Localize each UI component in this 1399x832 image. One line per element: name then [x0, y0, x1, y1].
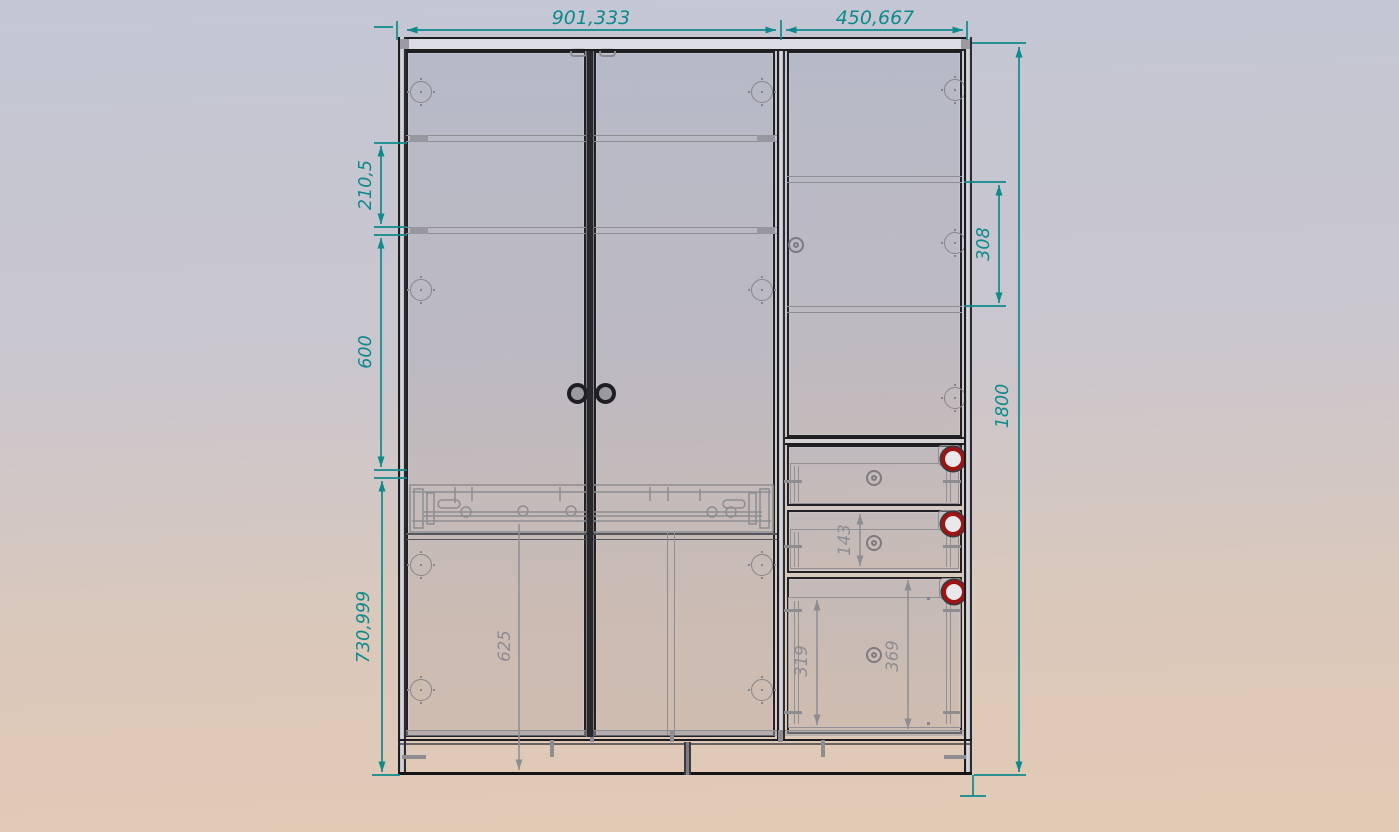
- top-panel: [398, 37, 972, 51]
- drawer-knob-icon[interactable]: [866, 647, 882, 663]
- drawer-rail: [794, 601, 799, 724]
- drawer-knob-icon[interactable]: [866, 535, 882, 551]
- shelf-line: [406, 227, 777, 234]
- dowel-mark: [944, 755, 966, 759]
- hinge-icon: [410, 81, 432, 103]
- rail-tick: [784, 480, 802, 483]
- rail-tick: [943, 545, 961, 548]
- dim-label-overall-height[interactable]: 1800: [993, 384, 1013, 429]
- hidden-divider-line: [667, 533, 675, 735]
- dim-label-right-width[interactable]: 450,667: [836, 7, 915, 29]
- shelf-endcap: [410, 227, 428, 234]
- bottom-shelf-edge: [406, 730, 964, 736]
- center-divider: [777, 51, 785, 741]
- dowel-dot: [927, 597, 930, 600]
- hinge-icon: [751, 81, 773, 103]
- hinge-icon: [751, 554, 773, 576]
- wardrobe-door-left[interactable]: [406, 51, 586, 737]
- cad-viewport: 143 319 369 625 901,333 450,667 210,5 60…: [0, 0, 1399, 832]
- wardrobe-door-right[interactable]: [594, 51, 775, 737]
- side-panel-left: [398, 37, 406, 775]
- dim-label-left-width[interactable]: 901,333: [552, 7, 631, 29]
- drawer-rail: [946, 466, 951, 502]
- drawer-rail: [946, 532, 951, 567]
- rail-tick: [943, 711, 961, 714]
- shelf-endcap: [410, 135, 428, 142]
- dim-label-right-shelf-spacing[interactable]: 308: [974, 227, 994, 260]
- shelf-line: [787, 176, 962, 183]
- dowel-mark: [821, 740, 825, 757]
- top-panel-endcap-left: [400, 39, 409, 49]
- drawer-pull-icon[interactable]: [942, 580, 966, 604]
- dowel-mark: [670, 730, 674, 742]
- hinge-icon: [944, 387, 966, 409]
- rail-tick: [784, 545, 802, 548]
- shelf-line: [787, 306, 962, 313]
- hinge-icon: [751, 279, 773, 301]
- hinge-icon: [944, 79, 966, 101]
- door-knob-icon[interactable]: [595, 383, 616, 404]
- shelf-line-dark: [406, 533, 777, 540]
- drawer-rail: [794, 466, 799, 502]
- dim-label-shelf-spacing[interactable]: 210,5: [356, 160, 376, 210]
- drawer-pull-bracket: [938, 510, 961, 531]
- door-knob-icon[interactable]: [567, 383, 588, 404]
- dim-label-middle-height[interactable]: 600: [356, 335, 376, 368]
- hinge-icon: [410, 679, 432, 701]
- drawer-pull-bracket: [939, 578, 962, 599]
- top-panel-endcap-right: [961, 39, 970, 49]
- shelf-endcap: [757, 227, 775, 234]
- hinge-icon: [751, 679, 773, 701]
- shelf-line: [406, 135, 777, 142]
- hinge-icon: [410, 279, 432, 301]
- side-panel-right: [964, 37, 972, 775]
- rail-tick: [943, 480, 961, 483]
- drawer-pull-icon[interactable]: [941, 512, 965, 536]
- dowel-mark: [590, 730, 594, 742]
- door-knob-icon[interactable]: [788, 237, 804, 253]
- drawer-pull-bracket: [938, 445, 961, 466]
- shelf-separator: [785, 437, 964, 445]
- rail-tick: [784, 609, 802, 612]
- dowel-mark: [778, 730, 783, 742]
- dowel-mark: [550, 740, 554, 757]
- drawer-pull-icon[interactable]: [941, 447, 965, 471]
- rail-tick: [943, 609, 961, 612]
- cabinet-door[interactable]: [787, 51, 962, 437]
- drawer-rail: [794, 532, 799, 567]
- dim-label-lower-height[interactable]: 730,999: [354, 591, 374, 663]
- drawer-rail: [946, 601, 951, 724]
- hinge-icon: [410, 554, 432, 576]
- dowel-dot: [927, 722, 930, 725]
- dowel-mark: [402, 755, 426, 759]
- drawer-knob-icon[interactable]: [866, 470, 882, 486]
- rail-tick: [784, 711, 802, 714]
- hinge-icon: [944, 232, 966, 254]
- shelf-endcap: [757, 135, 775, 142]
- plinth-support: [684, 742, 691, 775]
